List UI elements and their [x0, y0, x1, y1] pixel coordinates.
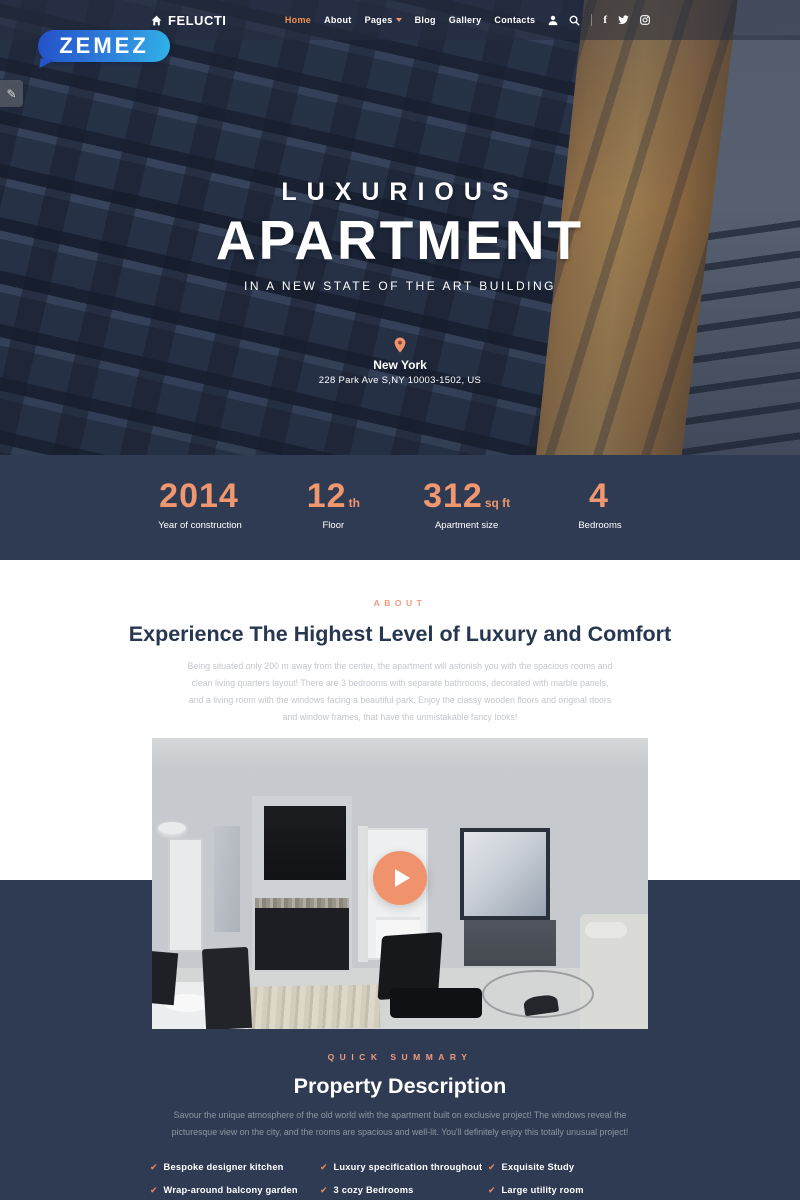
stat-size: 312sq ft Apartment size	[417, 479, 517, 531]
zemez-brand-badge[interactable]: ZEMEZ	[38, 30, 170, 62]
user-icon[interactable]	[548, 15, 558, 26]
check-icon	[488, 1185, 496, 1196]
menu-item-gallery[interactable]: Gallery	[449, 15, 482, 25]
feature-item: Bespoke designer kitchen	[150, 1162, 284, 1173]
menu-item-pages[interactable]: Pages	[365, 15, 402, 25]
twitter-icon[interactable]	[618, 15, 629, 25]
zemez-brand-text: ZEMEZ	[59, 33, 149, 59]
video-scene-hall-door	[168, 838, 203, 952]
facebook-icon[interactable]: f	[603, 14, 607, 26]
menu-item-home[interactable]: Home	[285, 15, 311, 25]
video-scene-dining-chair	[152, 951, 178, 1005]
location-city: New York	[0, 358, 800, 372]
video-scene-counter	[255, 898, 349, 908]
hero-eyebrow: LUXURIOUS	[0, 178, 800, 207]
about-eyebrow: ABOUT	[0, 598, 800, 608]
chevron-down-icon	[396, 18, 402, 22]
summary-heading: Property Description	[0, 1074, 800, 1099]
about-paragraph: Being situated only 200 m away from the …	[184, 658, 616, 727]
video-scene-dining-chair	[202, 947, 252, 1029]
stat-year: 2014 Year of construction	[150, 479, 250, 531]
play-button[interactable]	[373, 851, 427, 905]
search-icon[interactable]	[569, 15, 580, 26]
video-scene-ceiling	[152, 738, 648, 770]
instagram-icon[interactable]	[640, 15, 650, 25]
site-logo[interactable]: FELUCTI	[150, 13, 226, 28]
video-scene-lounge-chair-seat	[390, 988, 482, 1018]
stat-bedrooms: 4 Bedrooms	[550, 479, 650, 531]
home-icon	[150, 14, 163, 27]
main-menu: Home About Pages Blog Gallery Contacts	[285, 15, 535, 25]
summary-paragraph: Savour the unique atmosphere of the old …	[165, 1107, 635, 1141]
hero-subtitle: IN A NEW STATE OF THE ART BUILDING	[0, 279, 800, 293]
site-logo-text: FELUCTI	[168, 13, 226, 28]
nav-divider	[591, 14, 592, 26]
hero-location: New York 228 Park Ave S,NY 10003-1502, U…	[0, 337, 800, 386]
feature-item: Exquisite Study	[488, 1162, 574, 1173]
hero-section: FELUCTI Home About Pages Blog Gallery Co…	[0, 0, 800, 455]
hero-title: APARTMENT	[0, 208, 800, 272]
check-icon	[320, 1162, 328, 1173]
video-thumbnail[interactable]	[152, 738, 648, 1029]
page: FELUCTI Home About Pages Blog Gallery Co…	[0, 0, 800, 1200]
video-scene-large-art	[460, 828, 550, 920]
video-scene-ceiling-light	[158, 822, 186, 834]
check-icon	[488, 1162, 496, 1173]
feature-item: Wrap-around balcony garden	[150, 1185, 298, 1196]
video-scene-lower-cabinet	[255, 908, 349, 970]
check-icon	[150, 1162, 158, 1173]
video-scene-small-art	[214, 826, 240, 932]
check-icon	[150, 1185, 158, 1196]
menu-item-contacts[interactable]: Contacts	[494, 15, 535, 25]
check-icon	[320, 1185, 328, 1196]
about-heading: Experience The Highest Level of Luxury a…	[120, 621, 680, 649]
pencil-icon: ✎	[6, 87, 16, 101]
video-scene-upper-cabinet	[264, 806, 346, 880]
feature-item: 3 cozy Bedrooms	[320, 1185, 414, 1196]
menu-item-about[interactable]: About	[324, 15, 352, 25]
edit-pencil-button[interactable]: ✎	[0, 80, 23, 107]
play-icon	[395, 869, 410, 887]
video-scene-console-table	[464, 920, 556, 966]
feature-item: Luxury specification throughout	[320, 1162, 482, 1173]
summary-eyebrow: QUICK SUMMARY	[0, 1052, 800, 1062]
stat-floor: 12th Floor	[283, 479, 383, 531]
video-scene-sofa	[580, 914, 648, 1029]
map-pin-icon	[0, 337, 800, 353]
location-address: 228 Park Ave S,NY 10003-1502, US	[0, 375, 800, 386]
menu-item-blog[interactable]: Blog	[415, 15, 436, 25]
hero-content: LUXURIOUS APARTMENT IN A NEW STATE OF TH…	[0, 178, 800, 293]
feature-item: Large utility room	[488, 1185, 584, 1196]
stats-bar: 2014 Year of construction 12th Floor 312…	[0, 455, 800, 560]
features-list: Bespoke designer kitchen Luxury specific…	[150, 1162, 650, 1200]
